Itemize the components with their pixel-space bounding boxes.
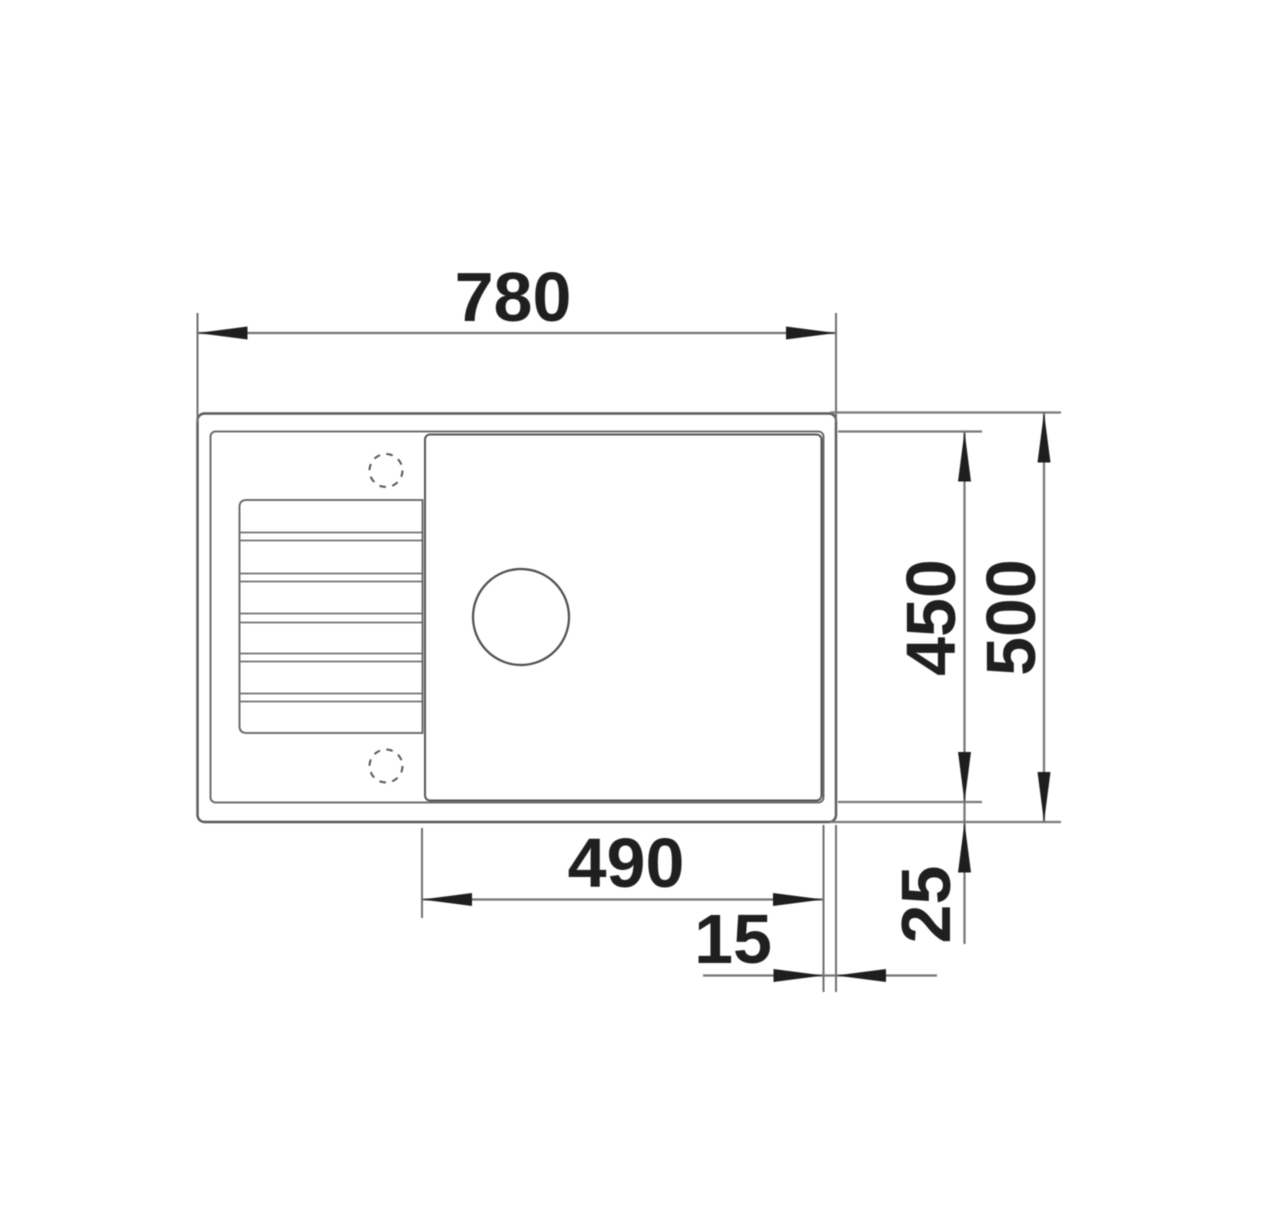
svg-text:780: 780 bbox=[455, 258, 572, 336]
svg-text:500: 500 bbox=[972, 559, 1050, 676]
svg-text:15: 15 bbox=[694, 900, 772, 978]
svg-text:450: 450 bbox=[892, 559, 970, 676]
svg-text:25: 25 bbox=[887, 866, 965, 944]
svg-text:490: 490 bbox=[568, 824, 685, 902]
